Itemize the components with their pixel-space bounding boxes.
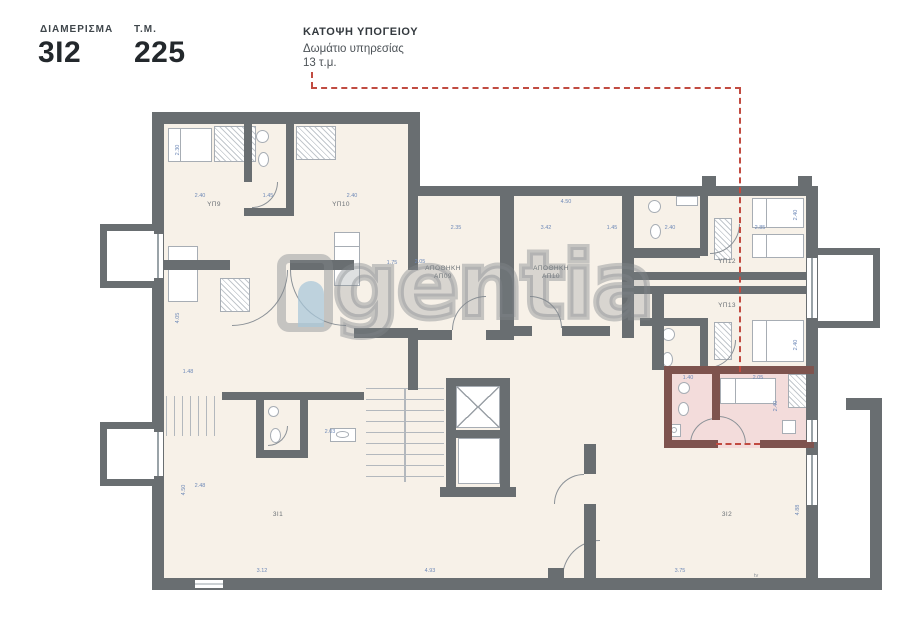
- wall-segment: [630, 272, 806, 280]
- dimension-label: 2.40: [195, 193, 206, 199]
- wall-segment: [300, 400, 308, 456]
- highlight-door-dash: [716, 443, 760, 445]
- dimension-label: 3.75: [675, 568, 686, 574]
- tv-label: tv: [754, 573, 758, 579]
- wall-segment: [448, 430, 508, 438]
- area-label: Τ.Μ.: [134, 24, 157, 35]
- wall-segment: [244, 124, 252, 182]
- window: [195, 580, 223, 588]
- wall-segment: [584, 444, 596, 474]
- dimension-label: 1.45: [263, 193, 274, 199]
- lightwell: [100, 224, 154, 288]
- callout-room-area: 13 τ.μ.: [303, 57, 337, 69]
- dimension-label: 1.75: [387, 260, 398, 266]
- wall-segment: [514, 326, 532, 336]
- dimension-label: 3.42: [541, 225, 552, 231]
- lightwell: [818, 248, 880, 328]
- highlight-wall: [664, 440, 718, 448]
- dimension-label: 2.40: [347, 193, 358, 199]
- callout-leader-line: [311, 72, 313, 88]
- sink-icon: [256, 130, 269, 143]
- bed-pillow-line: [766, 321, 767, 361]
- wall-segment: [622, 192, 634, 338]
- dimension-label: 4.50: [561, 199, 572, 205]
- wall-segment: [286, 124, 294, 216]
- sink-icon: [268, 406, 279, 417]
- bed-pillow-line: [735, 379, 736, 403]
- floorplan-page: ΔΙΑΜΕΡΙΣΜΑ 3Ι2 Τ.Μ. 225 ΚΑΤΟΨΗ ΥΠΟΓΕΙΟΥ …: [0, 0, 900, 617]
- bed-pillow-line: [766, 199, 767, 227]
- bed-icon: [752, 234, 804, 258]
- wall-segment: [152, 578, 880, 590]
- wall-segment: [164, 260, 230, 270]
- wall-segment: [798, 176, 812, 188]
- drain-icon: [671, 427, 677, 433]
- elevator-icon: [456, 386, 500, 428]
- dimension-label: 2.03: [325, 429, 336, 435]
- area-value: 225: [134, 36, 186, 70]
- furniture-icon: [782, 420, 796, 434]
- highlight-wall: [664, 366, 672, 446]
- stairs-icon: [166, 396, 218, 436]
- dimension-label: 4.88: [795, 505, 801, 516]
- wall-segment: [440, 487, 516, 497]
- highlight-wall: [760, 440, 814, 448]
- dimension-label: 2.40: [793, 210, 799, 221]
- apartment-value: 3Ι2: [38, 36, 81, 70]
- window: [807, 258, 817, 318]
- dimension-label: 2.85: [755, 225, 766, 231]
- wall-segment: [256, 400, 264, 456]
- callout-leader-line: [311, 87, 741, 89]
- dimension-label: 4.50: [181, 485, 187, 496]
- dimension-label: 2.40: [665, 225, 676, 231]
- wall-segment: [244, 208, 294, 216]
- highlight-wall: [712, 374, 720, 420]
- wc-icon: [258, 152, 269, 167]
- dimension-label: 2.40: [773, 401, 779, 412]
- lightwell: [100, 422, 154, 486]
- stair-rail: [404, 388, 406, 482]
- furniture-icon: [458, 438, 500, 484]
- furniture-icon: [676, 196, 698, 206]
- wall-segment: [152, 112, 164, 590]
- closet-icon: [296, 126, 336, 160]
- window: [153, 234, 163, 278]
- room-label: ΑΠΟΘΗΚΗ ΑΠ09: [425, 265, 461, 281]
- wall-segment: [652, 286, 664, 370]
- room-label: ΑΠΟΘΗΚΗ ΑΠ10: [533, 265, 569, 281]
- wall-segment: [562, 326, 610, 336]
- wc-icon: [650, 224, 661, 239]
- room-label: 3Ι1: [273, 511, 283, 519]
- dimension-label: 2.05: [415, 259, 426, 265]
- drain-icon: [336, 431, 349, 438]
- dimension-label: 4.93: [425, 568, 436, 574]
- sink-icon: [648, 200, 661, 213]
- wall-segment: [634, 248, 700, 258]
- bed-icon: [168, 246, 198, 302]
- wall-segment: [408, 186, 818, 196]
- wall-segment: [702, 176, 716, 188]
- room-label: ΥΠ12: [718, 258, 736, 266]
- room-label: ΥΠ9: [207, 201, 221, 209]
- dimension-label: 2.48: [195, 483, 206, 489]
- bed-icon: [720, 378, 776, 404]
- wall-segment: [222, 392, 364, 400]
- wall-segment: [870, 398, 882, 590]
- wall-segment: [408, 328, 418, 390]
- dimension-label: 2.40: [793, 340, 799, 351]
- wall-segment: [418, 330, 452, 340]
- dimension-label: 1.45: [607, 225, 618, 231]
- dimension-label: 2.30: [175, 145, 181, 156]
- dimension-label: 3.12: [257, 568, 268, 574]
- wall-segment: [152, 112, 420, 124]
- room-label: ΥΠ10: [332, 201, 350, 209]
- wall-segment: [256, 450, 308, 458]
- dimension-label: 1.40: [683, 375, 694, 381]
- wall-segment: [548, 568, 564, 580]
- callout-leader-line: [739, 88, 741, 372]
- wc-icon: [678, 402, 689, 416]
- bed-pillow-line: [766, 235, 767, 257]
- wall-segment: [584, 504, 596, 578]
- window: [807, 420, 817, 442]
- dimension-label: 2.35: [451, 225, 462, 231]
- sink-icon: [678, 382, 690, 394]
- dimension-label: 1.48: [183, 369, 194, 375]
- wall-segment: [500, 192, 514, 340]
- wall-segment: [446, 378, 510, 386]
- callout-room-name: Δωμάτιο υπηρεσίας: [303, 43, 404, 55]
- dimension-label: 4.05: [175, 313, 181, 324]
- wall-segment: [290, 260, 354, 270]
- wall-segment: [486, 330, 502, 340]
- wall-segment: [640, 318, 700, 326]
- wall-segment: [408, 112, 420, 196]
- room-label: 3Ι2: [722, 511, 732, 519]
- window: [153, 432, 163, 476]
- wall-segment: [700, 192, 708, 256]
- window: [807, 455, 817, 505]
- room-label: ΥΠ13: [718, 302, 736, 310]
- plan-title: ΚΑΤΟΨΗ ΥΠΟΓΕΙΟΥ: [303, 26, 418, 38]
- dimension-label: 2.05: [753, 375, 764, 381]
- bed-pillow-line: [335, 246, 359, 247]
- apartment-label: ΔΙΑΜΕΡΙΣΜΑ: [40, 24, 113, 35]
